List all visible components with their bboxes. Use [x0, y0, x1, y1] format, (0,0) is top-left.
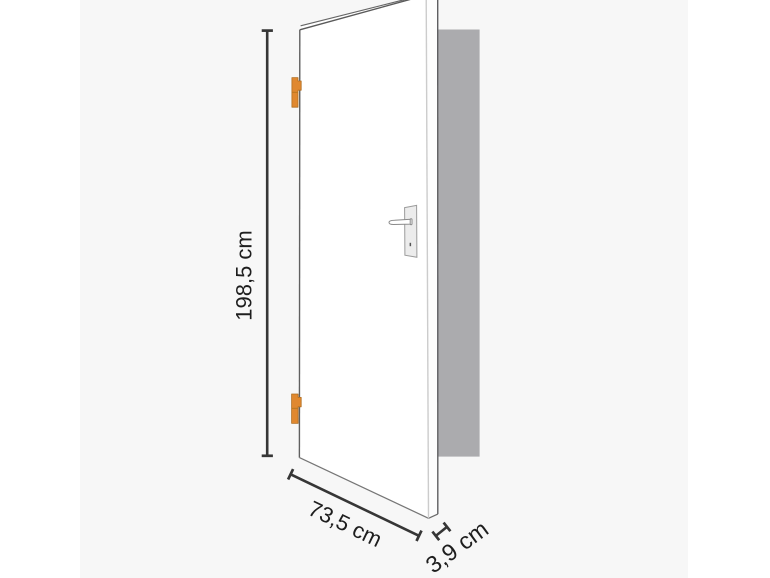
- svg-text:198,5 cm: 198,5 cm: [232, 230, 257, 321]
